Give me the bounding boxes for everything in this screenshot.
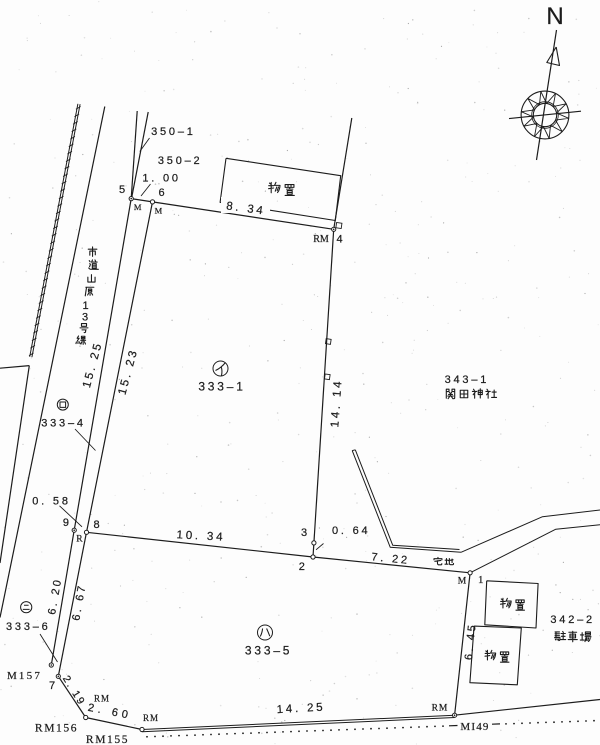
- svg-text:343–1: 343–1: [445, 374, 490, 386]
- svg-text:RM155: RM155: [86, 734, 129, 745]
- svg-text:333–6: 333–6: [6, 621, 51, 633]
- svg-text:RM156: RM156: [35, 723, 78, 735]
- svg-text:RM: RM: [94, 693, 110, 703]
- svg-text:5: 5: [119, 184, 125, 196]
- svg-text:342–2: 342–2: [550, 614, 595, 626]
- svg-text:333–5: 333–5: [245, 644, 292, 658]
- svg-text:350–2: 350–2: [158, 155, 203, 167]
- svg-text:M: M: [458, 577, 467, 587]
- svg-text:RM: RM: [143, 713, 159, 723]
- svg-text:0. 64: 0. 64: [332, 525, 370, 537]
- svg-text:3: 3: [301, 527, 307, 539]
- svg-text:4: 4: [336, 233, 342, 245]
- svg-text:10. 34: 10. 34: [176, 529, 225, 544]
- svg-text:0. 58: 0. 58: [32, 496, 70, 508]
- svg-text:R: R: [76, 534, 83, 544]
- svg-text:N: N: [546, 3, 563, 30]
- svg-text:1: 1: [478, 574, 484, 586]
- svg-text:M: M: [155, 206, 163, 216]
- svg-text:333–4: 333–4: [41, 418, 86, 430]
- svg-text:M: M: [134, 202, 142, 212]
- svg-text:2: 2: [299, 561, 305, 573]
- svg-text:14. 25: 14. 25: [276, 702, 325, 717]
- svg-text:RM: RM: [313, 234, 329, 245]
- svg-text:7: 7: [49, 680, 55, 692]
- svg-text:9: 9: [63, 517, 69, 529]
- svg-text:333–1: 333–1: [198, 380, 245, 394]
- svg-text:6: 6: [159, 187, 165, 199]
- svg-text:1. 00: 1. 00: [142, 172, 180, 184]
- svg-text:MI49: MI49: [460, 721, 489, 733]
- svg-text:3: 3: [82, 311, 88, 323]
- svg-text:8: 8: [94, 519, 100, 531]
- svg-text:1: 1: [83, 300, 89, 312]
- svg-text:M157: M157: [7, 670, 42, 682]
- svg-text:350–1: 350–1: [151, 126, 196, 138]
- svg-text:RM: RM: [432, 704, 449, 714]
